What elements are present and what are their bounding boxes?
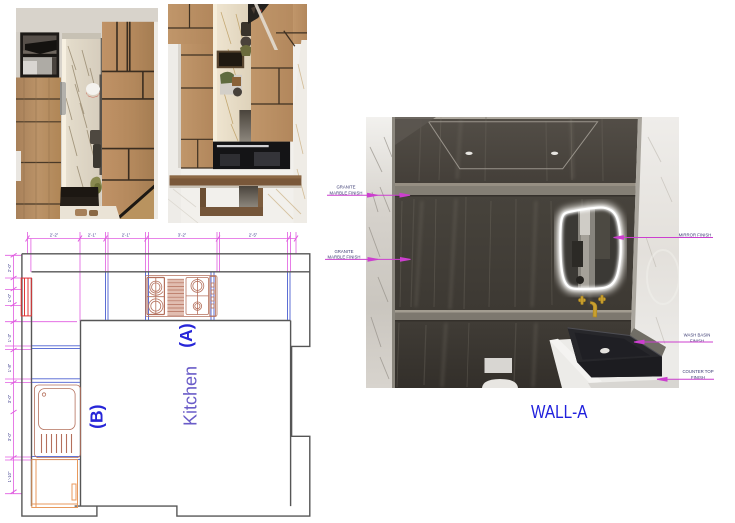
svg-text:WASH BASIN: WASH BASIN	[684, 333, 711, 338]
svg-text:GRANITE: GRANITE	[336, 185, 355, 190]
svg-text:COUNTER TOP: COUNTER TOP	[682, 369, 713, 374]
svg-text:MARBLE FINISH: MARBLE FINISH	[330, 190, 363, 195]
svg-text:GRANITE: GRANITE	[334, 249, 353, 254]
svg-text:MARBLE FINISH: MARBLE FINISH	[328, 255, 361, 260]
svg-text:FINISH: FINISH	[690, 339, 704, 344]
svg-text:MIRROR FINISH: MIRROR FINISH	[679, 233, 712, 238]
